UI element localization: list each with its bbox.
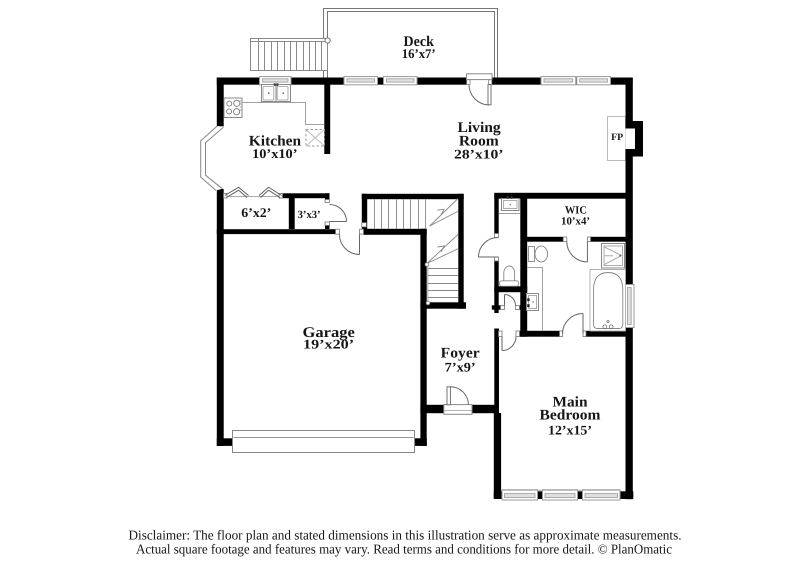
svg-text:6’x2’: 6’x2’ [241,205,271,220]
svg-text:16’x7’: 16’x7’ [402,46,436,61]
svg-text:28’x10’: 28’x10’ [454,147,504,162]
svg-text:Actual square footage and feat: Actual square footage and features may v… [136,542,672,557]
svg-text:FP: FP [611,132,623,143]
svg-text:Bedroom: Bedroom [540,408,602,424]
svg-text:WIC: WIC [565,204,587,216]
svg-text:3’x3’: 3’x3’ [298,209,321,221]
svg-text:10’x4’: 10’x4’ [561,216,590,228]
svg-text:10’x10’: 10’x10’ [252,146,297,161]
svg-text:7’x9’: 7’x9’ [445,360,476,375]
svg-text:19’x20’: 19’x20’ [303,337,354,352]
svg-text:Disclaimer: The floor plan and: Disclaimer: The floor plan and stated di… [129,528,682,543]
svg-text:12’x15’: 12’x15’ [548,423,592,438]
